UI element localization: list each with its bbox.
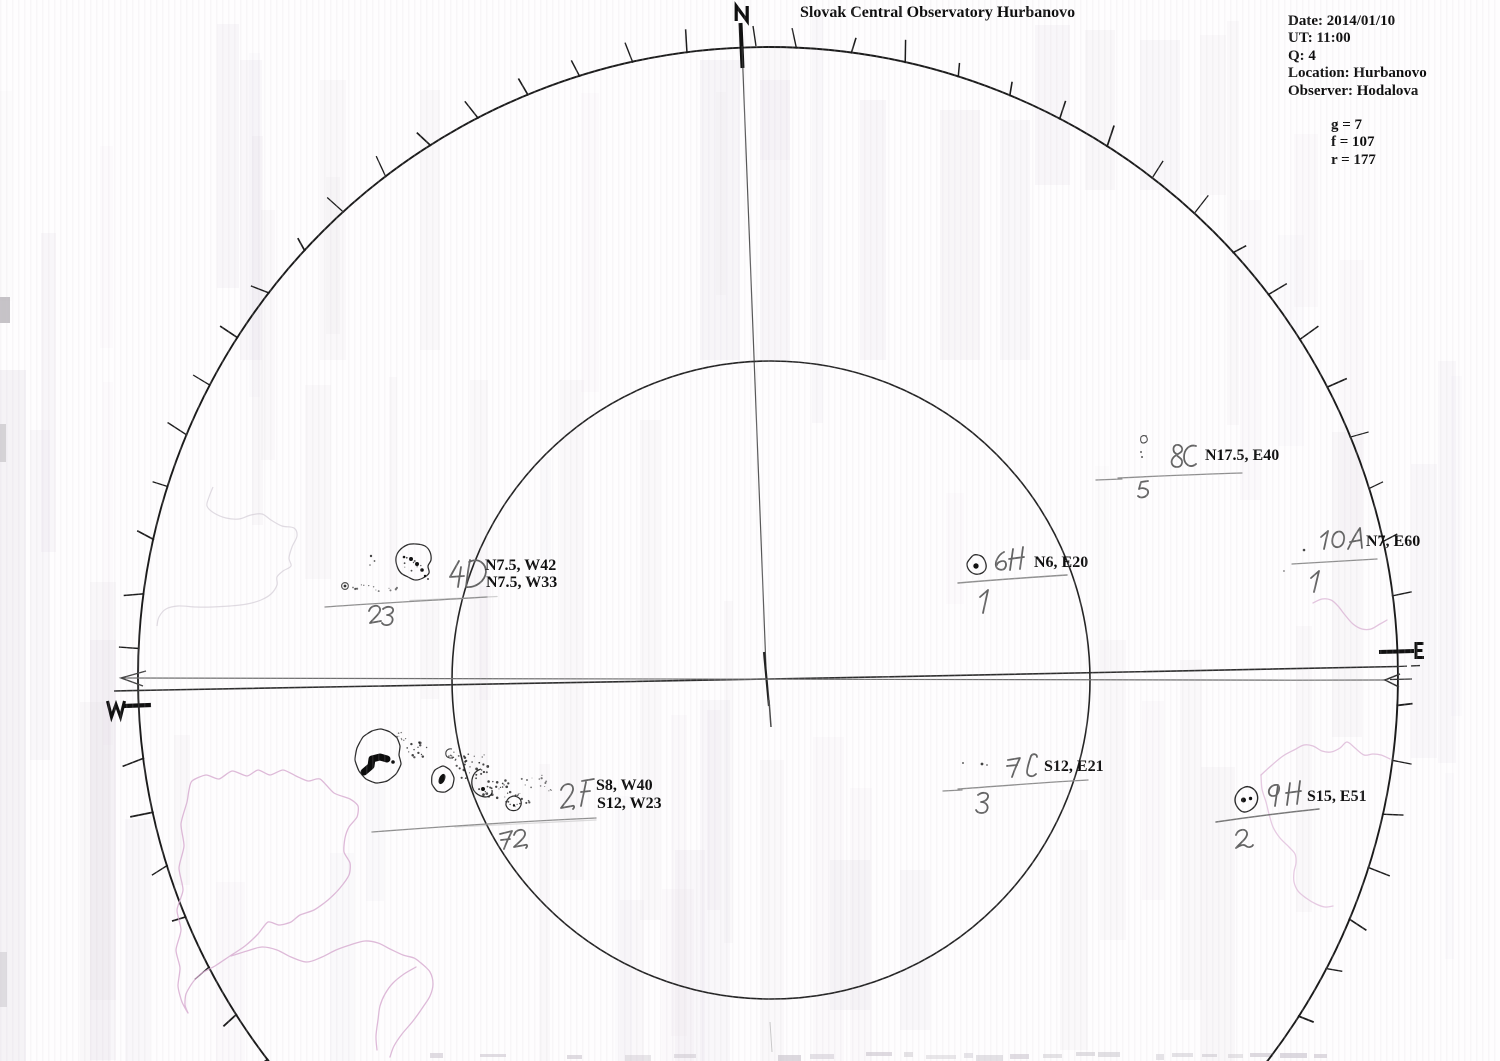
svg-text:S15, E51: S15, E51 xyxy=(1307,788,1367,805)
svg-text:N6, E20: N6, E20 xyxy=(1034,554,1088,571)
svg-text:S12, W23: S12, W23 xyxy=(597,795,662,812)
svg-text:N7, E60: N7, E60 xyxy=(1366,533,1420,550)
svg-text:S12, E21: S12, E21 xyxy=(1044,758,1104,775)
svg-text:S8, W40: S8, W40 xyxy=(596,777,653,794)
svg-text:N7.5, W33: N7.5, W33 xyxy=(486,574,557,591)
svg-text:N7.5, W42: N7.5, W42 xyxy=(485,557,556,574)
svg-text:N17.5, E40: N17.5, E40 xyxy=(1205,447,1279,464)
